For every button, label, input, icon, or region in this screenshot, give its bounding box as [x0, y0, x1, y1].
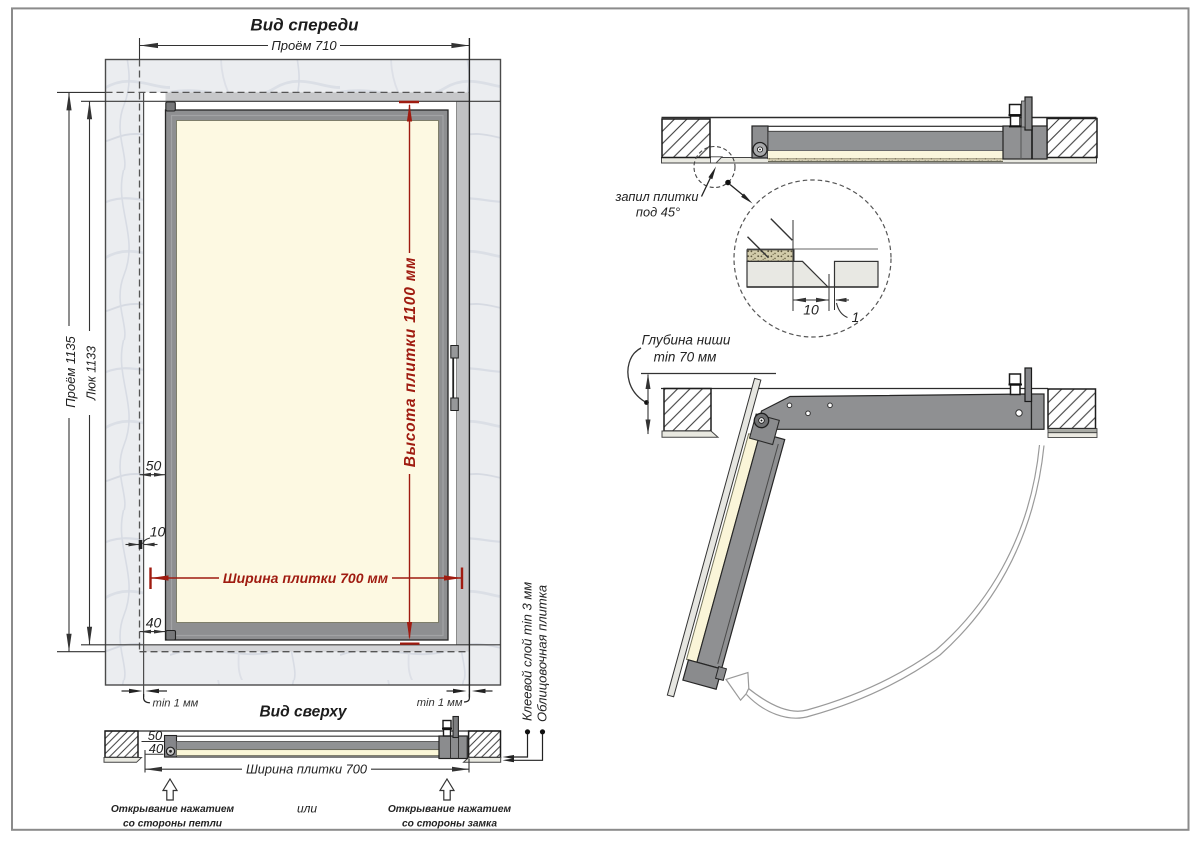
svg-text:10: 10	[803, 302, 819, 318]
svg-text:min 70 мм: min 70 мм	[654, 350, 717, 365]
svg-text:Клеевой слой min 3 мм: Клеевой слой min 3 мм	[520, 582, 535, 721]
svg-text:Люк 1133: Люк 1133	[85, 346, 99, 401]
svg-text:Ширина плитки 700: Ширина плитки 700	[246, 762, 368, 777]
svg-text:Вид спереди: Вид спереди	[250, 16, 359, 35]
svg-text:Вид сверху: Вид сверху	[259, 704, 347, 721]
svg-text:1: 1	[852, 309, 860, 325]
svg-text:Высота плитки 1100 мм: Высота плитки 1100 мм	[402, 257, 419, 468]
svg-text:min 1 мм: min 1 мм	[417, 697, 463, 709]
svg-text:под 45°: под 45°	[636, 205, 680, 220]
svg-text:Открывание нажатием: Открывание нажатием	[388, 804, 512, 815]
svg-text:min 1 мм: min 1 мм	[153, 698, 199, 710]
svg-text:50: 50	[146, 458, 162, 474]
svg-text:со стороны замка: со стороны замка	[402, 819, 497, 830]
svg-text:10: 10	[150, 524, 166, 540]
svg-text:40: 40	[146, 615, 162, 631]
svg-text:Ширина плитки 700 мм: Ширина плитки 700 мм	[223, 570, 389, 586]
svg-text:Открывание нажатием: Открывание нажатием	[111, 804, 235, 815]
svg-text:Облицовочная плитка: Облицовочная плитка	[535, 585, 550, 722]
svg-text:запил плитки: запил плитки	[615, 189, 699, 204]
svg-text:или: или	[297, 802, 317, 816]
svg-text:Проём 710: Проём 710	[271, 38, 337, 53]
svg-text:Глубина ниши: Глубина ниши	[642, 333, 731, 348]
svg-text:Проём 1135: Проём 1135	[63, 335, 78, 407]
svg-text:со стороны петли: со стороны петли	[123, 819, 223, 830]
